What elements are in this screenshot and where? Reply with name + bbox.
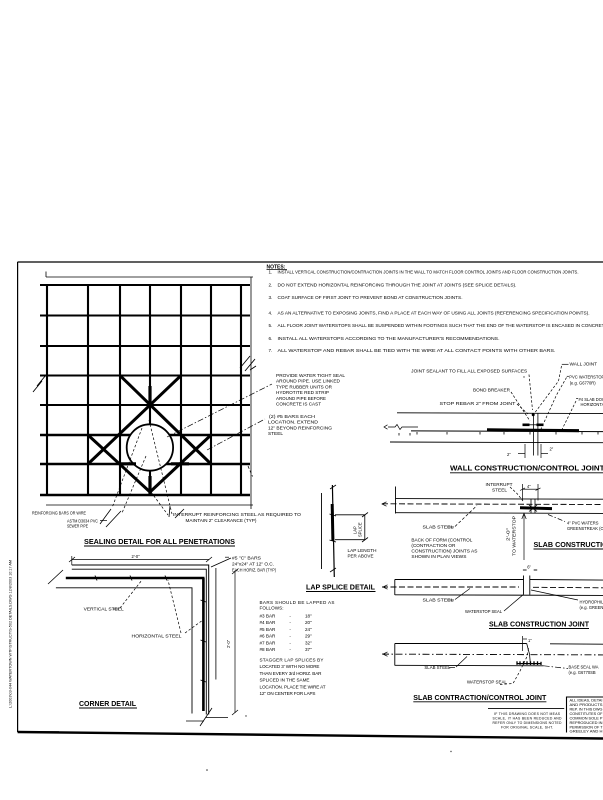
svg-text:CONSTITUTES OF: CONSTITUTES OF xyxy=(570,712,603,716)
svg-text:STEEL: STEEL xyxy=(492,488,508,493)
svg-text:(e.g. GREENSTR: (e.g. GREENSTR xyxy=(580,605,603,610)
svg-text:#8 BAR - 3: #8 BAR - 37" xyxy=(260,647,313,652)
svg-text:GREELEY AND H: GREELEY AND H xyxy=(570,730,603,734)
svg-text:FOLLOWS:: FOLLOWS: xyxy=(260,605,284,610)
svg-text:SEWER PIPE: SEWER PIPE xyxy=(67,524,88,529)
svg-text:REP. IN THIS DWG: REP. IN THIS DWG xyxy=(570,708,603,712)
svg-text:LOCATION. EXTEND: LOCATION. EXTEND xyxy=(268,420,319,425)
svg-text:HYDROPHILIC: HYDROPHILIC xyxy=(580,600,603,605)
svg-text:BOND BREAKER: BOND BREAKER xyxy=(473,388,511,393)
svg-text:(e.g. G6770SB: (e.g. G6770SB xyxy=(569,670,596,675)
svg-text:7.: 7. xyxy=(269,348,273,353)
svg-text:BARS SHOULD BE LAPPED AS: BARS SHOULD BE LAPPED AS xyxy=(260,600,335,605)
svg-text:#5 BAR - 2: #5 BAR - 24" xyxy=(260,627,313,632)
svg-text:(e.g. G6770R): (e.g. G6770R) xyxy=(570,381,597,386)
svg-text:IF THIS DRAWING DOES NOT MEAS: IF THIS DRAWING DOES NOT MEAS xyxy=(494,712,561,716)
svg-text:COMMON SOLE P: COMMON SOLE P xyxy=(570,717,603,721)
svg-text:STEEL: STEEL xyxy=(268,431,283,436)
svg-text:THAN EVERY 3rd HORIZ. BAR: THAN EVERY 3rd HORIZ. BAR xyxy=(260,671,323,676)
svg-text:HORIZONTAL: HORIZONTAL xyxy=(581,402,603,407)
svg-text:BASE SEAL WA: BASE SEAL WA xyxy=(569,665,599,670)
svg-text:#6 BAR - 2: #6 BAR - 29" xyxy=(260,634,313,639)
svg-text:TO WATERSTOP: TO WATERSTOP xyxy=(512,516,517,556)
svg-text:HYDROTITE RED STRIP: HYDROTITE RED STRIP xyxy=(276,390,329,395)
svg-text:2.: 2. xyxy=(269,283,273,288)
svg-text:AS AN ALTERNATIVE TO EXPOSING: AS AN ALTERNATIVE TO EXPOSING JOINTS, FI… xyxy=(278,311,590,316)
svg-text:2'-0": 2'-0" xyxy=(506,527,511,541)
svg-text:4": 4" xyxy=(527,484,531,489)
svg-text:4" PVC WATERS: 4" PVC WATERS xyxy=(567,521,599,526)
svg-text:REPRODUCED IN: REPRODUCED IN xyxy=(570,721,603,725)
svg-text:4.: 4. xyxy=(269,311,273,316)
svg-text:INSTALL ALL WATERSTOPS ACCORDI: INSTALL ALL WATERSTOPS ACCORDING TO THE … xyxy=(278,336,500,341)
svg-text:WATERSTOP SEAL: WATERSTOP SEAL xyxy=(467,680,507,685)
svg-text:MAINTAIN 2" CLEARANCE (TYP): MAINTAIN 2" CLEARANCE (TYP) xyxy=(186,518,258,523)
svg-text:SEALING DETAIL FOR ALL PENETRA: SEALING DETAIL FOR ALL PENETRATIONS xyxy=(84,537,235,546)
svg-text:CONCRETE IS CAST: CONCRETE IS CAST xyxy=(276,402,321,407)
svg-text:3.: 3. xyxy=(269,295,273,300)
svg-text:INTERRUPT REINFORCING STEEL AS: INTERRUPT REINFORCING STEEL AS REQUIRED … xyxy=(173,512,301,517)
svg-text:(2) #5 BARS EACH: (2) #5 BARS EACH xyxy=(269,414,315,419)
svg-text:LOCATED 3' WITH NO MORE: LOCATED 3' WITH NO MORE xyxy=(260,664,320,669)
svg-text:INSTALL VERTICAL CONSTRUCTION/: INSTALL VERTICAL CONSTRUCTION/CONTRACTIO… xyxy=(278,270,579,275)
svg-text:SLAB CONTRACTION/CONTROL JOINT: SLAB CONTRACTION/CONTROL JOINT xyxy=(413,693,547,702)
svg-text:SHOWN IN PLAN VIEWS: SHOWN IN PLAN VIEWS xyxy=(411,554,466,559)
svg-text:LOCATION. PLACE TIE WIRE AT: LOCATION. PLACE TIE WIRE AT xyxy=(260,684,326,689)
svg-text:TYPE RUBBER UNITS OR: TYPE RUBBER UNITS OR xyxy=(276,384,333,389)
svg-text:PER ABOVE: PER ABOVE xyxy=(348,554,374,559)
svg-text:SLAB CONSTRUCTION JOINT: SLAB CONSTRUCTION JOINT xyxy=(489,620,590,629)
svg-text:SPLICE: SPLICE xyxy=(358,522,363,537)
svg-text:JOINT SEALANT TO FILL ALL EXPO: JOINT SEALANT TO FILL ALL EXPOSED SURFAC… xyxy=(411,369,527,374)
svg-text:INTERRUPT: INTERRUPT xyxy=(486,482,514,487)
svg-text:1": 1" xyxy=(528,638,532,643)
svg-text:BACK OF FORM (CONTROL: BACK OF FORM (CONTROL xyxy=(411,538,473,543)
svg-text:REFER ONLY TO DIMENSIONS NOTED: REFER ONLY TO DIMENSIONS NOTED xyxy=(493,721,563,725)
svg-text:#5 "C" BARS: #5 "C" BARS xyxy=(232,556,261,561)
svg-text:L:\2003\03-044 WATERTOWN WTP\S: L:\2003\03-044 WATERTOWN WTP\STRUCT\S-50… xyxy=(9,560,13,708)
svg-text:HORIZONTAL STEEL: HORIZONTAL STEEL xyxy=(132,634,182,639)
svg-text:#4 BAR - 2: #4 BAR - 20" xyxy=(260,620,313,625)
svg-text:WALL CONSTRUCTION/CONTROL JOIN: WALL CONSTRUCTION/CONTROL JOINT TYP xyxy=(450,464,603,473)
svg-text:FOR ORIGINAL SCALE, SHT.: FOR ORIGINAL SCALE, SHT. xyxy=(501,726,553,730)
svg-text:AROUND PIPE. USE LINKED: AROUND PIPE. USE LINKED xyxy=(276,379,341,384)
svg-text:2'-0": 2'-0" xyxy=(132,554,141,559)
svg-text:ALL IDEAS, DETAI: ALL IDEAS, DETAI xyxy=(570,699,603,703)
svg-text:GREENSTREAK (O: GREENSTREAK (O xyxy=(567,526,603,531)
svg-text:12" ON CENTER FOR LAPS: 12" ON CENTER FOR LAPS xyxy=(260,691,316,696)
svg-text:LAP SPLICE DETAIL: LAP SPLICE DETAIL xyxy=(306,583,376,592)
svg-text:LAP LENGTH: LAP LENGTH xyxy=(348,548,377,553)
svg-text:REINFORCING BARS OR WIRE: REINFORCING BARS OR WIRE xyxy=(32,511,86,516)
svg-text:6": 6" xyxy=(527,565,531,570)
svg-text:STAGGER LAP SPLICES BY: STAGGER LAP SPLICES BY xyxy=(260,658,324,663)
svg-text:SLAB CONSTRUCTION JOINT: SLAB CONSTRUCTION JOINT xyxy=(534,540,603,549)
svg-text:AROUND PIPE BEFORE: AROUND PIPE BEFORE xyxy=(276,396,326,401)
svg-text:COAT SURFACE OF FIRST JOINT TO: COAT SURFACE OF FIRST JOINT TO PREVENT B… xyxy=(278,295,463,300)
svg-text:STOP REBAR 2" FROM JOINT: STOP REBAR 2" FROM JOINT xyxy=(440,401,516,406)
svg-text:5.: 5. xyxy=(269,323,273,328)
svg-text:ALL FLOOR JOINT WATERSTOPS SHA: ALL FLOOR JOINT WATERSTOPS SHALL BE SUSP… xyxy=(278,323,603,328)
svg-text:#4 SLAB DOWEL: #4 SLAB DOWEL xyxy=(579,397,603,402)
svg-text:EACH HORIZ. BAR (TYP): EACH HORIZ. BAR (TYP) xyxy=(232,567,277,572)
svg-text:2": 2" xyxy=(550,447,554,452)
svg-text:WALL JOINT: WALL JOINT xyxy=(570,361,598,366)
svg-text:ALL WATERSTOP AND REBAR SHALL: ALL WATERSTOP AND REBAR SHALL BE TIED WI… xyxy=(278,348,556,353)
svg-text:AND PRODUCTS: AND PRODUCTS xyxy=(570,703,603,707)
svg-text:PVC WATERSTOP: PVC WATERSTOP xyxy=(569,375,603,380)
svg-text:2'-0": 2'-0" xyxy=(226,639,231,648)
svg-text:1.: 1. xyxy=(269,270,273,275)
svg-text:12" BEYOND REINFORCING: 12" BEYOND REINFORCING xyxy=(268,425,332,430)
svg-text:SPLICED IN THE SAME: SPLICED IN THE SAME xyxy=(260,678,310,683)
svg-text:CORNER DETAIL: CORNER DETAIL xyxy=(79,699,137,708)
svg-text:2": 2" xyxy=(507,452,511,457)
svg-text:SCALE, IT HAS BEEN REDUCED AND: SCALE, IT HAS BEEN REDUCED AND xyxy=(493,717,563,721)
svg-text:(CONTRACTION OR: (CONTRACTION OR xyxy=(411,543,455,548)
svg-text:#3 BAR - 1: #3 BAR - 18" xyxy=(260,614,313,619)
svg-text:PROVIDE WATER TIGHT SEAL: PROVIDE WATER TIGHT SEAL xyxy=(276,373,345,378)
svg-text:DO NOT EXTEND HORIZONTAL REINF: DO NOT EXTEND HORIZONTAL REINFORCING THR… xyxy=(278,283,517,288)
svg-text:6.: 6. xyxy=(269,336,273,341)
svg-text:24"x24" AT 12" O.C.: 24"x24" AT 12" O.C. xyxy=(232,562,274,567)
svg-text:WATERSTOP SEAL: WATERSTOP SEAL xyxy=(465,609,502,614)
svg-text:CONSTRUCTION) JOINTS AS: CONSTRUCTION) JOINTS AS xyxy=(411,549,477,554)
svg-text:#7 BAR - 3: #7 BAR - 32" xyxy=(260,640,313,645)
svg-text:SLAB STEEL: SLAB STEEL xyxy=(424,665,450,670)
